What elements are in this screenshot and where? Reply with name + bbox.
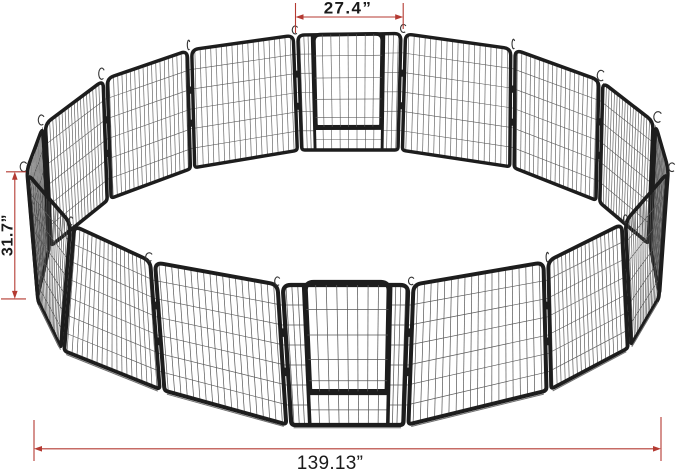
svg-text:31.7”: 31.7”	[0, 214, 16, 256]
svg-text:27.4”: 27.4”	[324, 0, 373, 18]
svg-text:139.13”: 139.13”	[297, 453, 364, 470]
